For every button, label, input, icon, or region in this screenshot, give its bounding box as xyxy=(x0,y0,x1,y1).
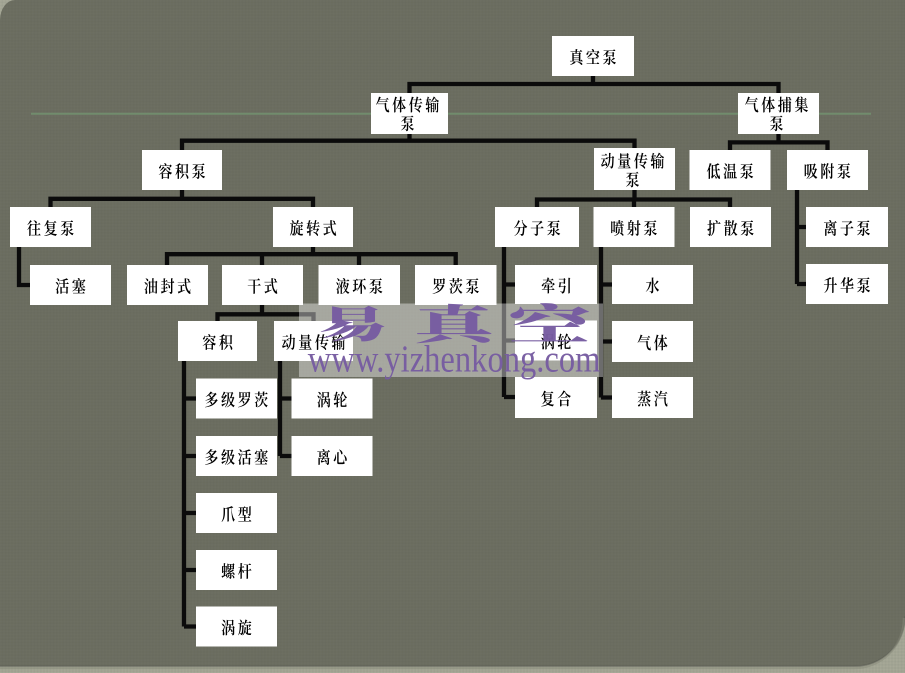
svg-text:www.yizhenkong.com: www.yizhenkong.com xyxy=(308,338,601,380)
